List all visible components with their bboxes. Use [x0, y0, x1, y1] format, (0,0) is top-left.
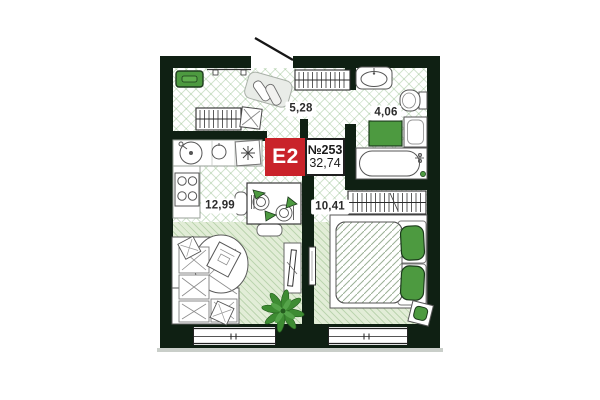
area-label-hallway: 5,28	[285, 102, 316, 117]
area-label-kitchen-living: 12,99	[201, 199, 239, 214]
wall-bedroom-divider	[302, 176, 314, 324]
wall-bathroom-bottom	[345, 178, 427, 190]
area-label-bathroom: 4,06	[370, 106, 401, 121]
wall-right	[427, 56, 440, 348]
area-label-bedroom: 10,41	[311, 200, 349, 215]
wall-stub	[300, 119, 308, 139]
unit-number: №253	[308, 143, 343, 157]
wall-bottom	[160, 324, 440, 348]
floorplan-card[interactable]: 5,28 4,06 12,99 10,41 E2 №253 32,74	[0, 0, 600, 400]
parapet-edge	[157, 348, 443, 352]
unit-info-box: №253 32,74	[305, 138, 345, 176]
entrance-door-leaf	[255, 38, 293, 60]
unit-total-area: 32,74	[309, 157, 340, 171]
unit-type-badge: E2	[265, 138, 306, 176]
floor-living-room	[173, 222, 302, 324]
wall-left	[160, 56, 173, 348]
wall-hallway-divider	[173, 131, 267, 141]
floor-bedroom	[314, 222, 427, 324]
wall-top-left	[160, 56, 251, 68]
wall-top-right	[293, 56, 440, 68]
wall-bathroom-top	[345, 68, 356, 90]
